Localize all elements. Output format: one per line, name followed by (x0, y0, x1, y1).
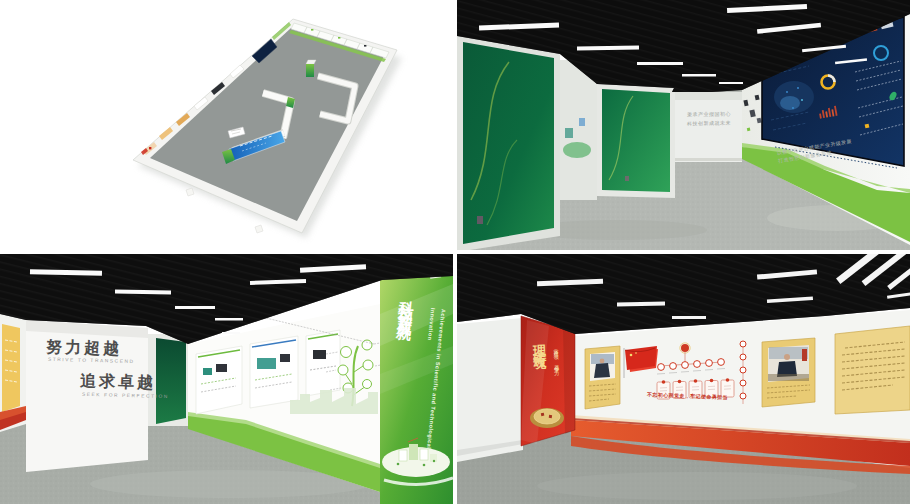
floorplan-view (0, 0, 453, 250)
dashboard-alert-icon (865, 124, 870, 129)
corridor-view: 秉承产业报国初心 科技创新成就未来 以数字化平台赋能产业升级发展 打造智慧创新服… (457, 0, 910, 250)
end-wall-slogan: 秉承产业报国初心 科技创新成就未来 (677, 109, 741, 127)
gold-portrait-panel-a (585, 346, 620, 409)
exhibit-board-3 (306, 330, 340, 396)
party-hall-view: 理念铸魂 党建引领 凝心聚力 不忘初心跟党走，牢记使命勇担当 (457, 254, 910, 504)
exhibition-hall-renders-grid: 秉承产业报国初心 科技创新成就未来 以数字化平台赋能产业升级发展 打造智慧创新服… (0, 0, 910, 504)
green-pillar-near (457, 36, 560, 250)
left-wall (457, 318, 523, 462)
green-pillar-far (597, 84, 675, 198)
achievement-hall-view: 努力超越 STRIVE TO TRANSCEND 追求卓越 SEEK FOR P… (0, 254, 453, 504)
gold-text-panel (835, 326, 910, 414)
red-panel-title: 理念铸魂 (529, 334, 550, 425)
end-wall-slogan-line2: 科技创新成就未来 (677, 118, 741, 128)
exhibit-board-1 (196, 346, 242, 414)
gold-portrait-panel-b (762, 338, 815, 407)
slogan-perfection-cn: 追求卓越 (80, 371, 157, 394)
floorplan-scene (0, 0, 453, 250)
achievement-scene (0, 254, 453, 504)
dashboard-map-chart (774, 81, 814, 113)
corridor-distant-exhibits (560, 60, 597, 200)
party-scene (457, 254, 910, 504)
dashboard-ring-chart (874, 46, 888, 60)
exhibit-board-2 (250, 336, 298, 408)
left-accent-wall (0, 314, 26, 432)
